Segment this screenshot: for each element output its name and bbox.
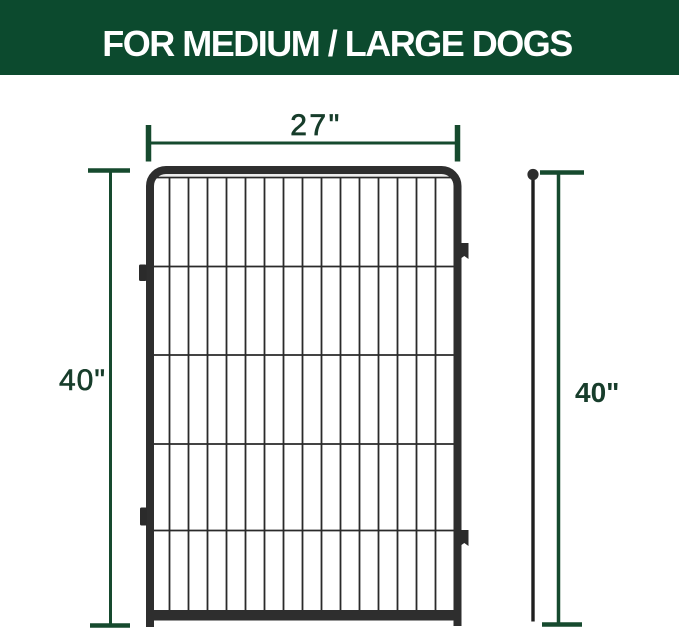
- svg-text:27": 27": [290, 109, 342, 142]
- svg-text:40": 40": [59, 364, 106, 397]
- svg-text:40": 40": [575, 377, 619, 408]
- svg-text:FOR MEDIUM / LARGE DOGS: FOR MEDIUM / LARGE DOGS: [102, 23, 572, 64]
